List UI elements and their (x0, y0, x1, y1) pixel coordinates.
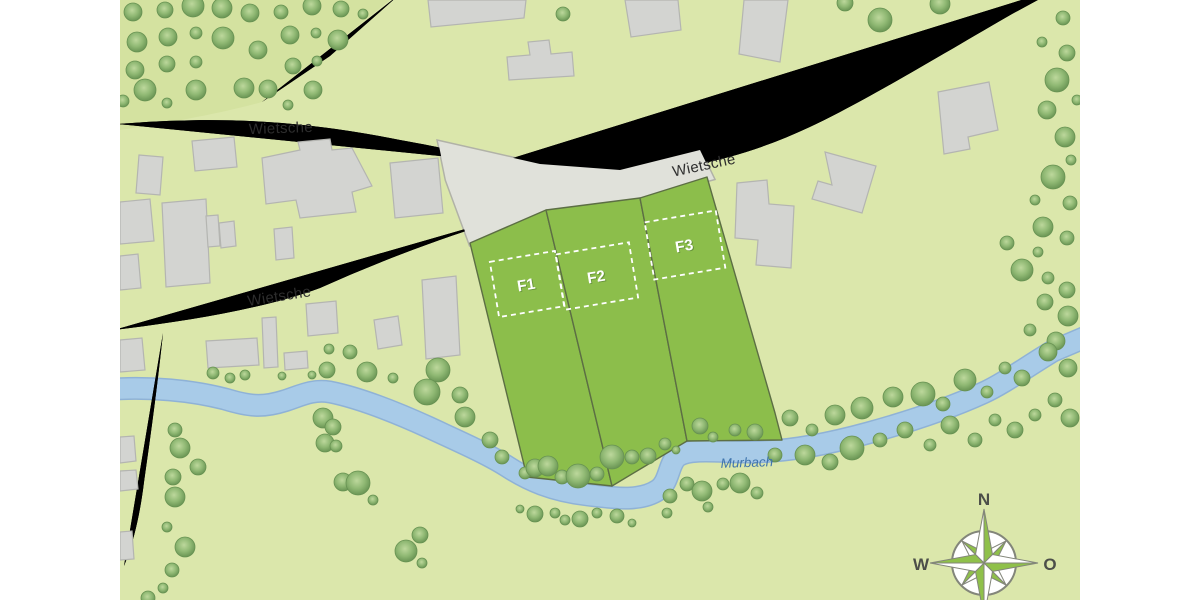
tree-icon (1000, 236, 1014, 250)
tree-icon (1011, 259, 1033, 281)
tree-icon (999, 362, 1011, 374)
tree-icon (127, 32, 147, 52)
tree-icon (325, 419, 341, 435)
tree-icon (134, 79, 156, 101)
tree-icon (412, 527, 428, 543)
tree-icon (600, 445, 624, 469)
parcel-label-f2: F2 (586, 268, 607, 288)
tree-icon (395, 540, 417, 562)
tree-icon (249, 41, 267, 59)
tree-icon (610, 509, 624, 523)
tree-icon (159, 56, 175, 72)
tree-icon (527, 506, 543, 522)
tree-icon (538, 456, 558, 476)
parcel-label-f1: F1 (516, 276, 537, 296)
tree-icon (1039, 343, 1057, 361)
building (120, 254, 141, 290)
tree-icon (717, 478, 729, 490)
tree-icon (1059, 282, 1075, 298)
tree-icon (822, 454, 838, 470)
building (390, 158, 443, 218)
tree-icon (165, 487, 185, 507)
tree-icon (628, 519, 636, 527)
tree-icon (868, 8, 892, 32)
building (120, 338, 145, 372)
tree-icon (1059, 359, 1077, 377)
building (274, 227, 294, 260)
tree-icon (304, 81, 322, 99)
tree-icon (311, 28, 321, 38)
tree-icon (414, 379, 440, 405)
building (625, 0, 681, 37)
building (192, 137, 237, 171)
tree-icon (556, 7, 570, 21)
tree-icon (516, 505, 524, 513)
map-canvas: F1 F1 F2 F2 F3 F3 Wietsche Wietsche Wiet… (0, 0, 1200, 600)
tree-icon (190, 27, 202, 39)
tree-icon (212, 0, 232, 18)
tree-icon (911, 382, 935, 406)
tree-icon (278, 372, 286, 380)
tree-icon (730, 473, 750, 493)
tree-icon (482, 432, 498, 448)
tree-icon (851, 397, 873, 419)
tree-icon (158, 583, 168, 593)
tree-icon (346, 471, 370, 495)
tree-icon (175, 537, 195, 557)
tree-icon (240, 370, 250, 380)
tree-icon (388, 373, 398, 383)
building (120, 531, 134, 560)
tree-icon (162, 522, 172, 532)
building (162, 199, 210, 287)
tree-icon (324, 344, 334, 354)
building (120, 470, 138, 491)
tree-icon (455, 407, 475, 427)
parcel-label-f3: F3 (674, 237, 695, 257)
tree-icon (308, 371, 316, 379)
tree-icon (981, 386, 993, 398)
stream-label-murbach: Murbach (720, 454, 773, 471)
tree-icon (968, 433, 982, 447)
tree-icon (560, 515, 570, 525)
tree-icon (1058, 306, 1078, 326)
tree-icon (165, 469, 181, 485)
tree-icon (186, 80, 206, 100)
tree-icon (285, 58, 301, 74)
tree-icon (941, 416, 959, 434)
building (739, 0, 788, 62)
tree-icon (1048, 393, 1062, 407)
tree-icon (190, 459, 206, 475)
compass-label-north: N (978, 490, 990, 509)
tree-icon (368, 495, 378, 505)
tree-icon (873, 433, 887, 447)
tree-icon (1037, 294, 1053, 310)
tree-icon (883, 387, 903, 407)
tree-icon (212, 27, 234, 49)
building (120, 436, 136, 463)
tree-icon (452, 387, 468, 403)
tree-icon (572, 511, 588, 527)
tree-icon (1045, 68, 1069, 92)
tree-icon (1066, 155, 1076, 165)
tree-icon (692, 418, 708, 434)
tree-icon (157, 2, 173, 18)
tree-icon (825, 405, 845, 425)
tree-icon (795, 445, 815, 465)
tree-icon (590, 467, 604, 481)
tree-icon (640, 448, 656, 464)
tree-icon (897, 422, 913, 438)
tree-icon (1014, 370, 1030, 386)
tree-icon (1063, 196, 1077, 210)
tree-icon (1033, 217, 1053, 237)
building (120, 199, 154, 244)
tree-icon (330, 440, 342, 452)
building (284, 351, 308, 370)
tree-icon (936, 397, 950, 411)
tree-icon (662, 508, 672, 518)
tree-icon (312, 56, 322, 66)
tree-icon (672, 446, 680, 454)
tree-icon (165, 563, 179, 577)
building (136, 155, 163, 195)
tree-icon (1037, 37, 1047, 47)
tree-icon (659, 438, 671, 450)
tree-icon (357, 362, 377, 382)
tree-icon (1038, 101, 1056, 119)
tree-icon (274, 5, 288, 19)
tree-icon (117, 95, 129, 107)
tree-icon (124, 3, 142, 21)
building (262, 317, 278, 368)
site-plan-page: F1 F1 F2 F2 F3 F3 Wietsche Wietsche Wiet… (0, 0, 1200, 600)
tree-icon (806, 424, 818, 436)
building (206, 215, 220, 247)
tree-icon (1024, 324, 1036, 336)
tree-icon (747, 424, 763, 440)
building (206, 338, 259, 368)
building (422, 276, 460, 359)
building (219, 221, 236, 248)
tree-icon (592, 508, 602, 518)
tree-icon (1072, 95, 1082, 105)
tree-icon (989, 414, 1001, 426)
tree-icon (751, 487, 763, 499)
tree-icon (1060, 231, 1074, 245)
tree-icon (566, 464, 590, 488)
tree-icon (426, 358, 450, 382)
tree-icon (259, 80, 277, 98)
tree-icon (333, 1, 349, 17)
tree-icon (840, 436, 864, 460)
tree-icon (1042, 272, 1054, 284)
tree-icon (417, 558, 427, 568)
building (374, 316, 402, 349)
tree-icon (303, 0, 321, 15)
tree-icon (625, 450, 639, 464)
tree-icon (241, 4, 259, 22)
compass-label-east: O (1043, 555, 1056, 574)
tree-icon (358, 9, 368, 19)
tree-icon (1041, 165, 1065, 189)
tree-icon (692, 481, 712, 501)
tree-icon (954, 369, 976, 391)
tree-icon (729, 424, 741, 436)
tree-icon (703, 502, 713, 512)
tree-icon (159, 28, 177, 46)
tree-icon (924, 439, 936, 451)
compass-label-west: W (913, 555, 930, 574)
tree-icon (1056, 11, 1070, 25)
tree-icon (1007, 422, 1023, 438)
tree-icon (1061, 409, 1079, 427)
tree-icon (708, 432, 718, 442)
tree-icon (281, 26, 299, 44)
building (306, 301, 338, 336)
tree-icon (782, 410, 798, 426)
tree-icon (168, 423, 182, 437)
tree-icon (225, 373, 235, 383)
tree-icon (1030, 195, 1040, 205)
tree-icon (126, 61, 144, 79)
tree-icon (1055, 127, 1075, 147)
road-label-wietsche-upper: Wietsche (249, 119, 314, 138)
tree-icon (1029, 409, 1041, 421)
tree-icon (663, 489, 677, 503)
tree-icon (234, 78, 254, 98)
tree-icon (162, 98, 172, 108)
tree-icon (319, 362, 335, 378)
tree-icon (550, 508, 560, 518)
tree-icon (328, 30, 348, 50)
tree-icon (495, 450, 509, 464)
tree-icon (343, 345, 357, 359)
tree-icon (190, 56, 202, 68)
tree-icon (1059, 45, 1075, 61)
tree-icon (283, 100, 293, 110)
tree-icon (207, 367, 219, 379)
tree-icon (170, 438, 190, 458)
tree-icon (1033, 247, 1043, 257)
